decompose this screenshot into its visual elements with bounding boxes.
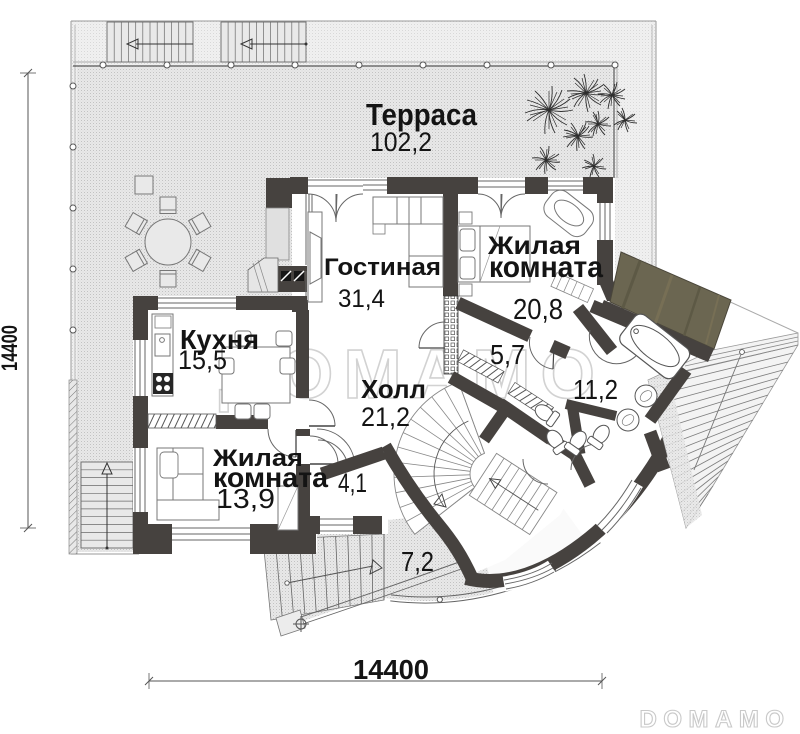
svg-text:21,2: 21,2 xyxy=(361,402,410,432)
svg-text:Холл: Холл xyxy=(361,374,426,404)
svg-text:DOMAMO: DOMAMO xyxy=(640,706,791,733)
svg-text:13,9: 13,9 xyxy=(216,483,275,514)
svg-text:4,1: 4,1 xyxy=(338,468,367,498)
svg-text:14400: 14400 xyxy=(353,654,429,685)
svg-text:14400: 14400 xyxy=(0,325,22,371)
svg-text:5,7: 5,7 xyxy=(490,339,525,370)
svg-text:20,8: 20,8 xyxy=(513,294,563,326)
svg-text:11,2: 11,2 xyxy=(573,374,618,405)
svg-text:комната: комната xyxy=(489,251,603,284)
svg-text:102,2: 102,2 xyxy=(370,127,432,157)
svg-text:15,5: 15,5 xyxy=(178,345,227,375)
svg-text:Гостиная: Гостиная xyxy=(324,254,441,281)
svg-text:7,2: 7,2 xyxy=(401,546,434,577)
svg-text:31,4: 31,4 xyxy=(338,285,385,313)
